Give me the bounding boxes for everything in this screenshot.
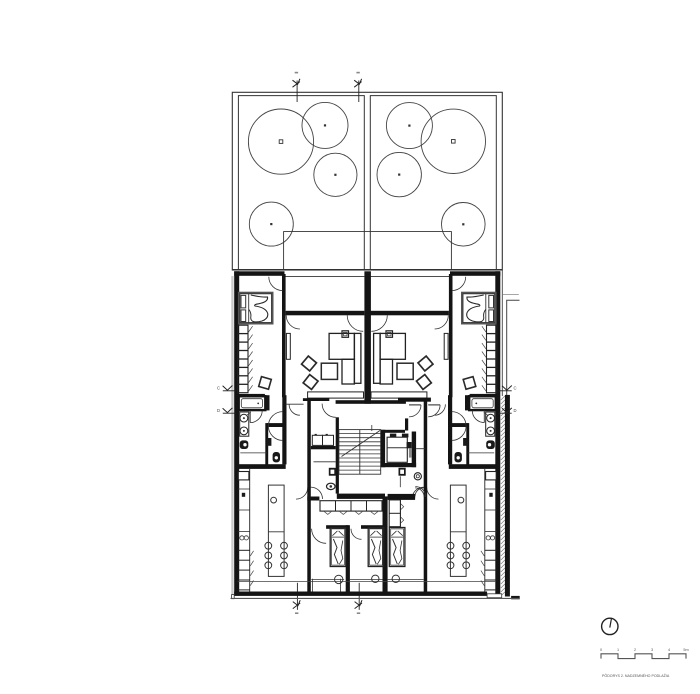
- svg-text:4: 4: [668, 648, 670, 652]
- svg-text:C: C: [514, 386, 517, 391]
- svg-text:D: D: [217, 408, 220, 413]
- svg-text:PÔDORYS 2. NADZEMNÉHO PODLAŽIA: PÔDORYS 2. NADZEMNÉHO PODLAŽIA: [602, 673, 670, 678]
- svg-text:3: 3: [651, 648, 653, 652]
- svg-text:5m: 5m: [683, 648, 688, 652]
- svg-text:D: D: [514, 408, 517, 413]
- svg-text:1: 1: [617, 648, 619, 652]
- svg-text:2: 2: [634, 648, 636, 652]
- svg-text:0: 0: [600, 648, 602, 652]
- svg-text:C: C: [217, 386, 220, 391]
